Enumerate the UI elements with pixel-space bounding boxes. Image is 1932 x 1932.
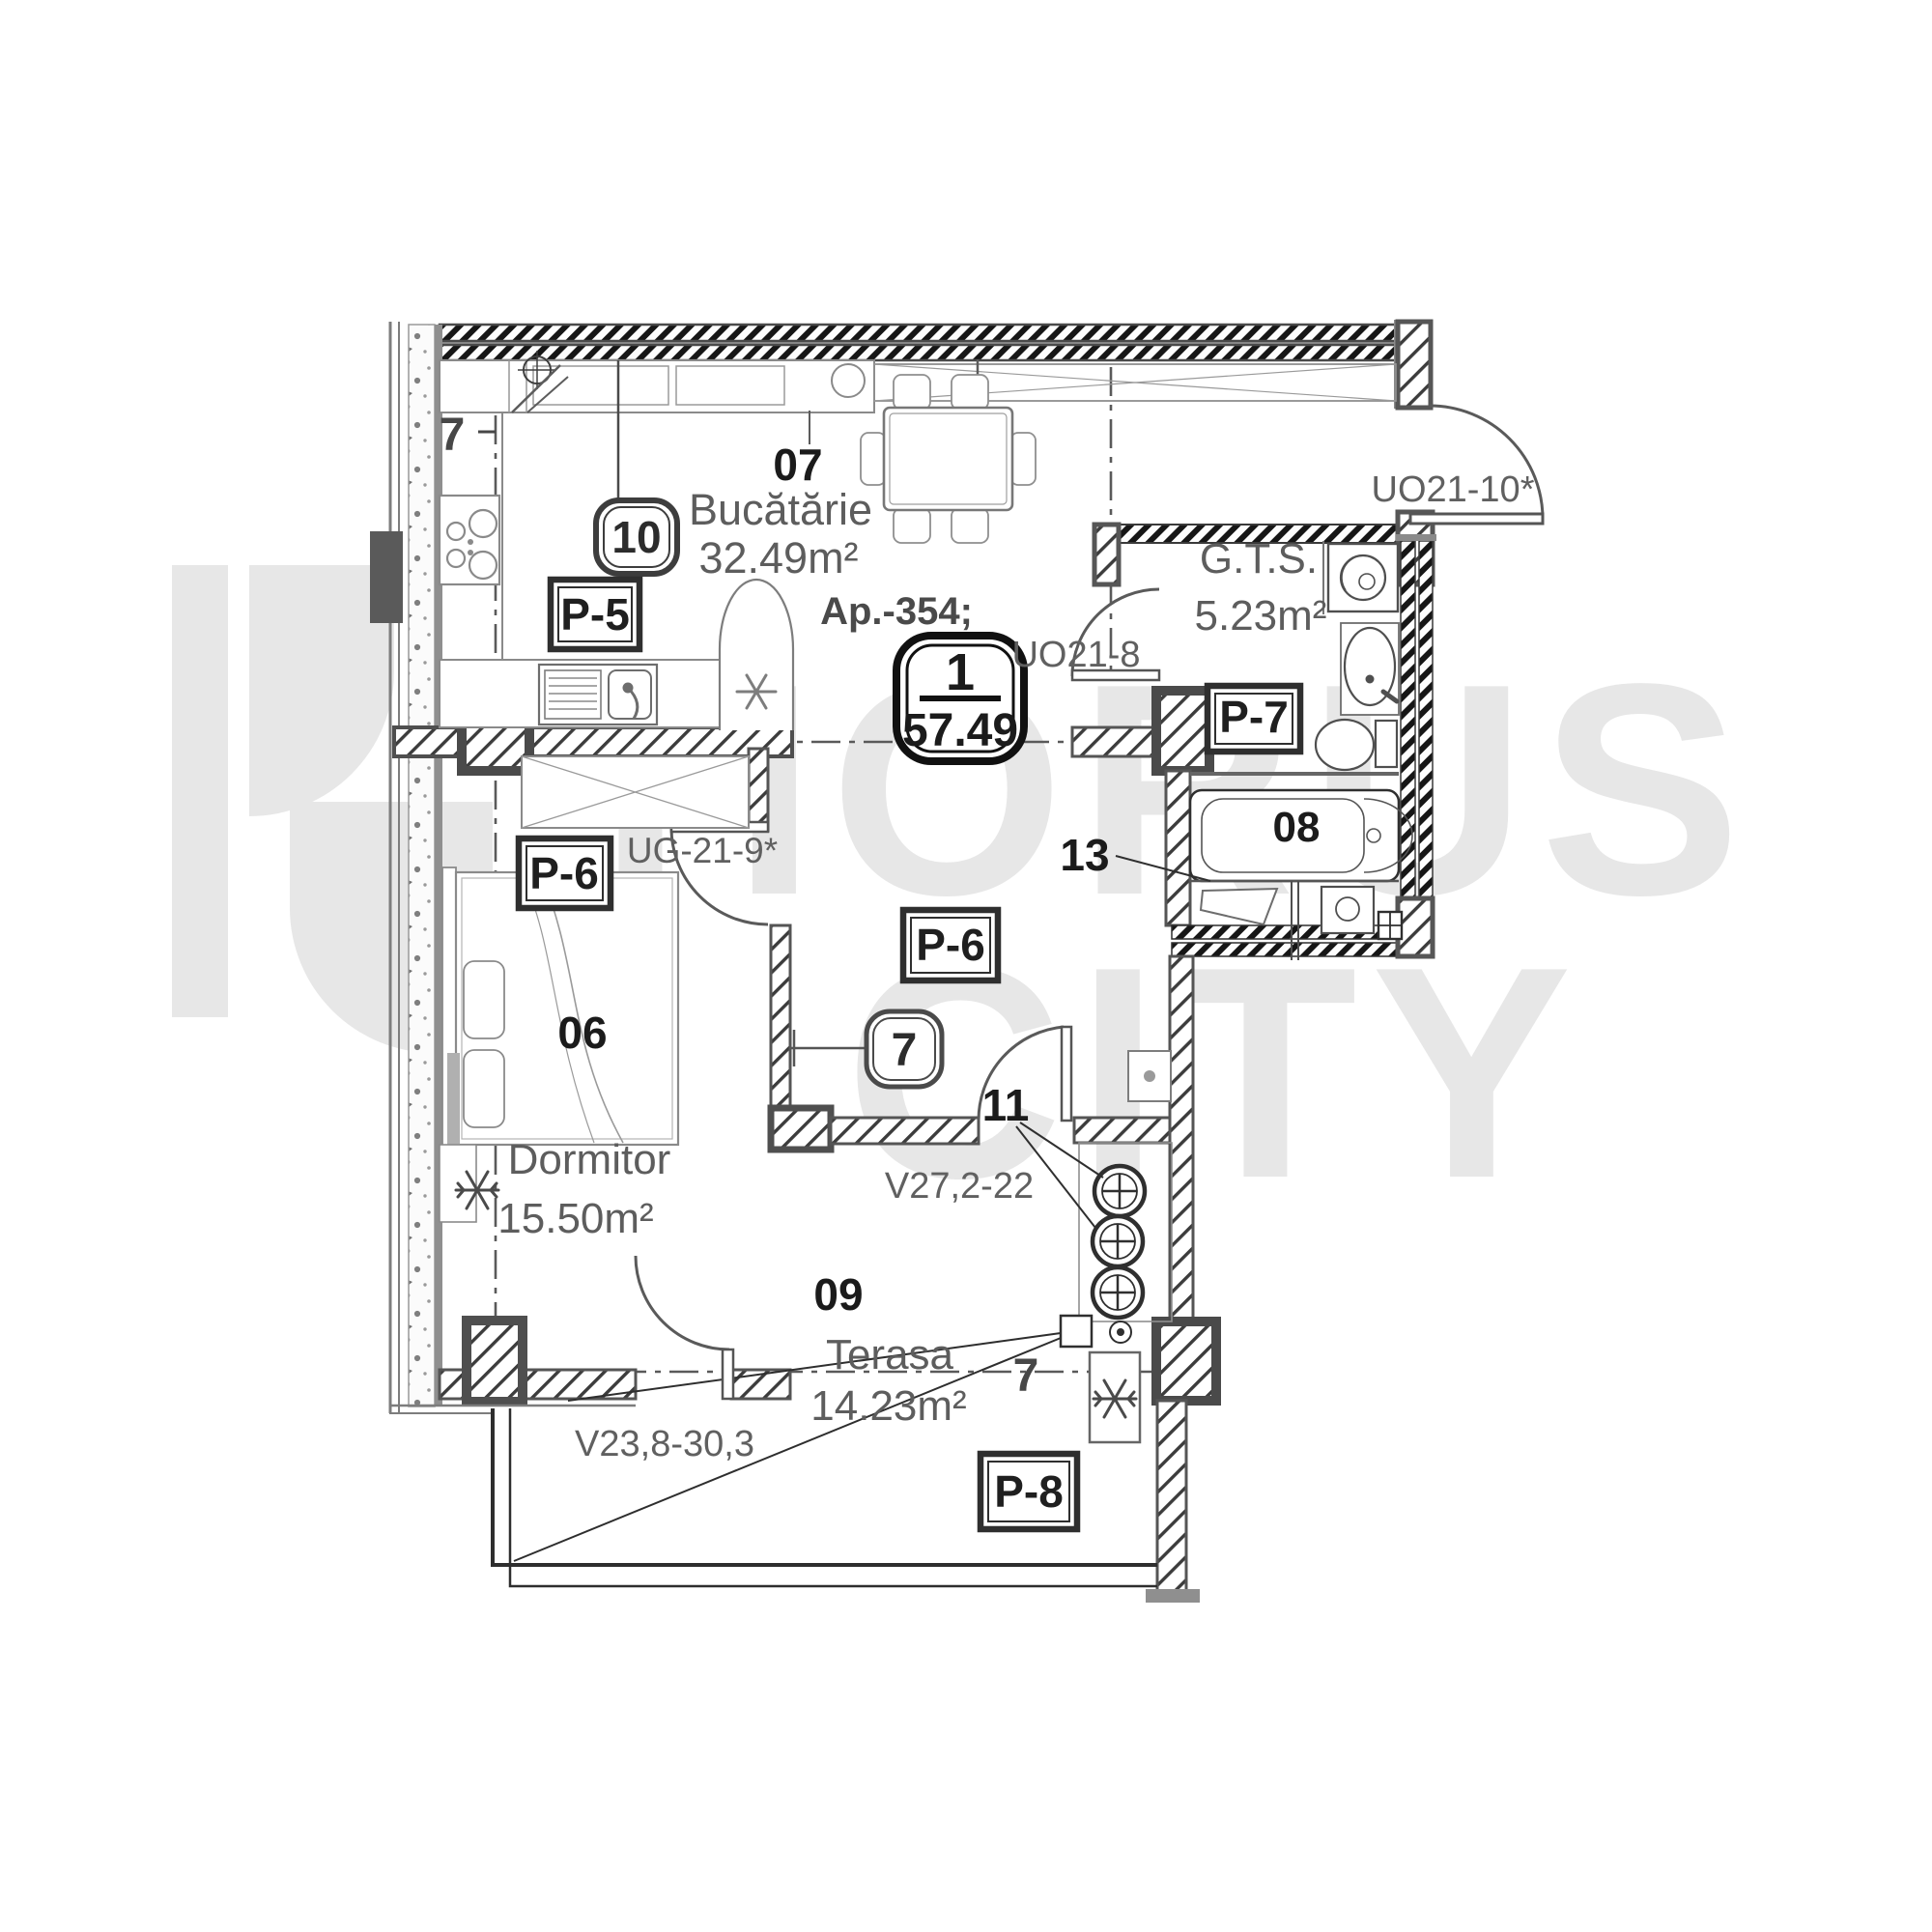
door-gts-code: UO21-8 [1011,635,1140,675]
panel-p8-label: P-8 [994,1466,1064,1517]
room-06-area: 15.50m² [497,1195,653,1242]
window-v27-code: V27,2-22 [885,1166,1034,1207]
room-07-name: Bucătărie [689,485,872,534]
apartment-area: 57.49 [902,705,1018,756]
window-v23-code: V23,8-30,3 [575,1424,754,1464]
panel-p6-bedroom: P-6 [519,838,611,908]
room-09-name: Terasa [826,1331,954,1378]
panel-p7: P-7 [1207,686,1300,752]
axis-label-top: 7 [440,410,466,461]
room-09-number: 09 [813,1269,863,1320]
dining-table [884,408,1012,510]
apartment-number: 1 [946,643,975,701]
panel-p6-bedroom-label: P-6 [529,848,599,898]
apartment-badge: 1 57.49 [896,636,1024,761]
door-entrance-code: UO21-10* [1372,469,1535,510]
washing-machine [1328,544,1398,611]
floor-plan-canvas: HORUS CITY [0,0,1932,1932]
axis-label-bottom: 7 [1013,1350,1039,1402]
panel-p8: P-8 [980,1454,1077,1529]
door-bedroom-code: UG-21-9* [627,831,778,870]
room-gts-name: G.T.S. [1200,535,1318,582]
badge-10-label: 10 [611,512,661,562]
room-06-number: 06 [557,1008,607,1058]
marker-badge-7: 7 [867,1011,942,1087]
riser-11-label: 11 [982,1080,1030,1130]
wall-13-label: 13 [1060,830,1109,880]
room-07-number: 07 [773,440,822,490]
toilet [1316,720,1374,770]
room-08-number: 08 [1273,804,1321,851]
riser-pipes [1093,1166,1145,1318]
floor-plan-page: HORUS CITY [0,0,1932,1932]
bedroom-terrace-door-leaf [723,1350,733,1399]
panel-p7-label: P-7 [1219,692,1289,742]
panel-p6-hall: P-6 [903,910,998,980]
panel-p5: P-5 [551,580,639,649]
entrance-door-leaf [1410,514,1543,524]
badge-7-label: 7 [892,1025,918,1076]
room-gts-area: 5.23m² [1195,592,1327,639]
panel-p6-hall-label: P-6 [916,920,985,970]
room-06-name: Dormitor [508,1136,671,1183]
marker-badge-10: 10 [596,500,677,574]
room-07-area: 32.49m² [698,533,858,582]
panel-p5-label: P-5 [560,589,630,639]
terrace-door-leaf [1062,1027,1071,1121]
apartment-id-label: Ap.-354; [820,590,973,633]
room-09-area: 14.23m² [810,1382,966,1430]
terrace-sensor [1061,1316,1092,1347]
